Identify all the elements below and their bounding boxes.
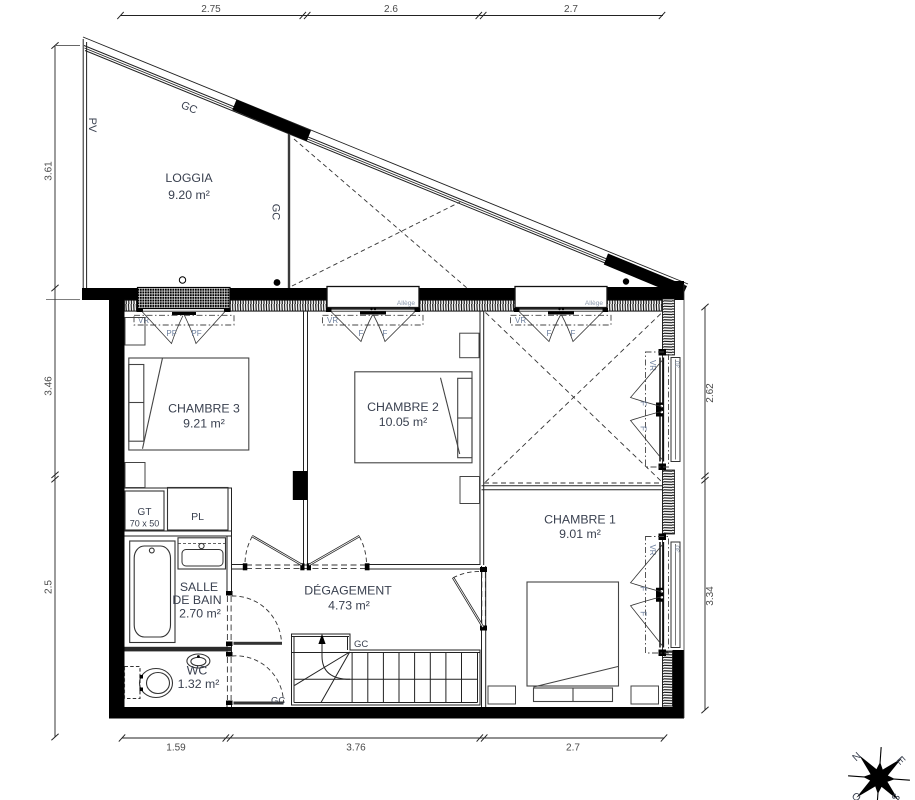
svg-text:DÉGAGEMENT: DÉGAGEMENT bbox=[304, 583, 392, 598]
svg-text:3.46: 3.46 bbox=[44, 376, 55, 396]
svg-text:30: 30 bbox=[675, 361, 682, 369]
svg-text:F: F bbox=[383, 329, 388, 338]
svg-text:CHAMBRE 3: CHAMBRE 3 bbox=[168, 402, 240, 416]
svg-text:F: F bbox=[359, 329, 364, 338]
svg-text:CHAMBRE 1: CHAMBRE 1 bbox=[544, 513, 616, 527]
svg-text:Allège: Allège bbox=[397, 300, 415, 307]
svg-text:GC: GC bbox=[354, 639, 368, 650]
svg-text:GT: GT bbox=[138, 507, 152, 518]
svg-text:4.73 m²: 4.73 m² bbox=[328, 599, 370, 613]
svg-text:3.76: 3.76 bbox=[346, 743, 366, 754]
svg-text:2.62: 2.62 bbox=[705, 383, 716, 403]
svg-text:F: F bbox=[639, 611, 648, 616]
svg-text:WC: WC bbox=[187, 664, 208, 678]
svg-text:F: F bbox=[571, 329, 576, 338]
svg-text:1.59: 1.59 bbox=[166, 743, 186, 754]
svg-text:VR: VR bbox=[648, 544, 657, 555]
svg-text:2.5: 2.5 bbox=[44, 580, 55, 594]
svg-text:2.6: 2.6 bbox=[384, 4, 398, 15]
svg-text:10.05 m²: 10.05 m² bbox=[379, 415, 428, 429]
svg-text:DE BAIN: DE BAIN bbox=[172, 593, 221, 607]
svg-text:GC: GC bbox=[270, 204, 282, 221]
svg-text:F: F bbox=[639, 401, 648, 406]
svg-text:9.20 m²: 9.20 m² bbox=[168, 188, 210, 202]
svg-text:3.61: 3.61 bbox=[44, 161, 55, 181]
svg-text:PV: PV bbox=[86, 118, 98, 133]
svg-text:CHAMBRE 2: CHAMBRE 2 bbox=[367, 400, 439, 414]
svg-text:PL: PL bbox=[191, 511, 204, 523]
svg-text:VR: VR bbox=[648, 360, 657, 371]
svg-text:70 x 50: 70 x 50 bbox=[130, 519, 160, 529]
svg-text:9.01 m²: 9.01 m² bbox=[559, 527, 601, 541]
svg-text:F: F bbox=[639, 586, 648, 591]
svg-text:F: F bbox=[547, 329, 552, 338]
svg-text:2.7: 2.7 bbox=[566, 743, 580, 754]
svg-text:GC: GC bbox=[271, 696, 285, 707]
svg-text:3.34: 3.34 bbox=[705, 586, 716, 606]
svg-text:PF: PF bbox=[166, 329, 176, 338]
svg-text:Allège: Allège bbox=[585, 300, 603, 307]
svg-text:2.7: 2.7 bbox=[564, 4, 578, 15]
svg-text:F: F bbox=[639, 426, 648, 431]
svg-text:LOGGIA: LOGGIA bbox=[165, 171, 213, 185]
svg-text:SALLE: SALLE bbox=[180, 580, 218, 594]
svg-text:2.75: 2.75 bbox=[201, 4, 221, 15]
svg-text:2.70 m²: 2.70 m² bbox=[179, 607, 221, 621]
svg-text:PF: PF bbox=[191, 329, 201, 338]
svg-text:9.21 m²: 9.21 m² bbox=[183, 417, 225, 431]
svg-text:30: 30 bbox=[675, 545, 682, 553]
svg-text:1.32 m²: 1.32 m² bbox=[178, 677, 220, 691]
